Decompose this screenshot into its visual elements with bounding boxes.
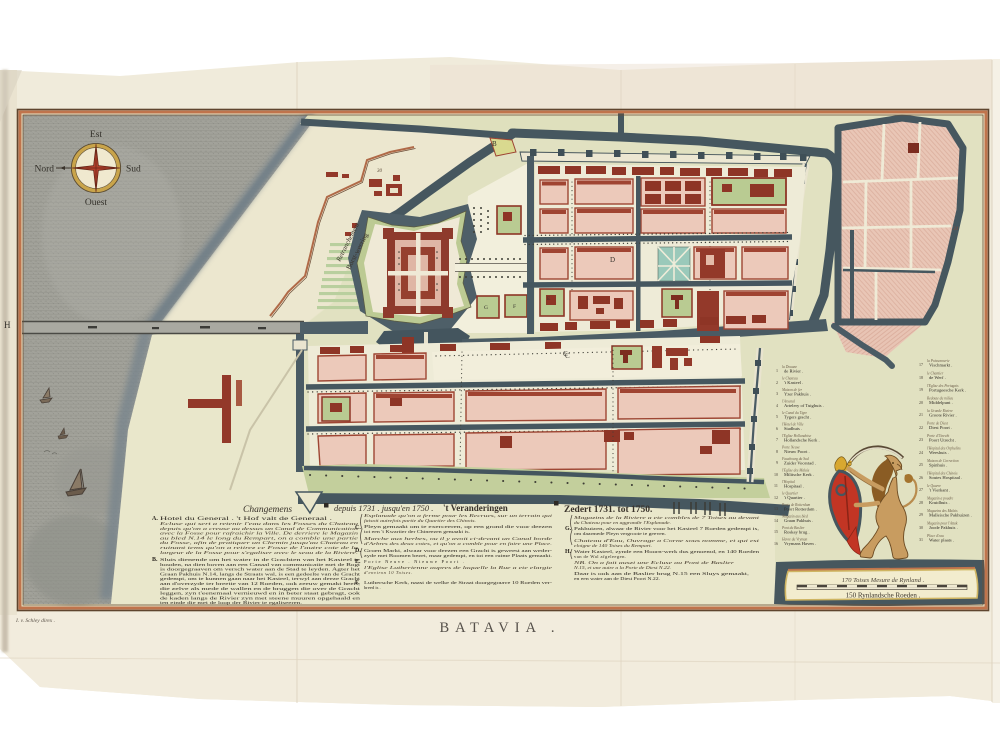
svg-text:Spinhuis .: Spinhuis . [929, 463, 947, 468]
svg-text:eloigne de 140 Toises du Rempa: eloigne de 140 Toises du Rempart. [574, 543, 652, 548]
svg-text:B.: B. [152, 557, 158, 563]
svg-text:H: H [4, 320, 11, 330]
svg-text:8: 8 [776, 449, 778, 454]
svg-text:21: 21 [919, 412, 923, 417]
svg-text:28: 28 [919, 500, 923, 505]
svg-text:Water plaats .: Water plaats . [929, 538, 954, 543]
svg-text:Joode Pakhuis .: Joode Pakhuis . [929, 525, 958, 530]
svg-text:10: 10 [774, 472, 778, 477]
svg-text:ten einde die met de loop der: ten einde die met de loop der Rivier te … [160, 600, 302, 605]
svg-text:Vischmarkt .: Vischmarkt . [929, 363, 952, 368]
svg-text:Hollandsche Kerk .: Hollandsche Kerk . [784, 438, 820, 443]
svg-text:'t Veranderingen: 't Veranderingen [443, 503, 508, 513]
svg-text:en een water aan de Diest Poor: en een water aan de Diest Poort N.22. [574, 576, 660, 581]
svg-text:26: 26 [919, 475, 923, 480]
svg-text:Porte Neuve . Nieuwe Poort .: Porte Neuve . Nieuwe Poort . [364, 559, 464, 564]
svg-text:Poort Utrecht .: Poort Utrecht . [929, 438, 956, 443]
svg-text:F: F [513, 304, 516, 310]
svg-text:27: 27 [919, 487, 923, 492]
svg-text:2: 2 [776, 380, 778, 385]
svg-text:7: 7 [776, 437, 778, 442]
svg-text:170 Toises Mesure de Rynland .: 170 Toises Mesure de Rynland . [842, 577, 925, 584]
svg-text:Groote Rivier .: Groote Rivier . [929, 413, 957, 418]
svg-text:Sud: Sud [126, 165, 141, 175]
svg-text:5: 5 [776, 414, 778, 419]
svg-text:d'environ 10 Toises.: d'environ 10 Toises. [364, 570, 412, 575]
svg-text:Stadhuis .: Stadhuis . [784, 426, 802, 431]
svg-text:24: 24 [919, 450, 923, 455]
svg-text:17: 17 [919, 362, 923, 367]
svg-text:Militsche Kerk .: Militsche Kerk . [784, 472, 814, 477]
svg-text:25: 25 [919, 462, 923, 467]
svg-text:Changemens: Changemens [243, 505, 292, 515]
svg-text:Diest Poort .: Diest Poort . [929, 425, 952, 430]
svg-text:B: B [492, 140, 497, 148]
svg-text:13: 13 [774, 506, 778, 511]
svg-text:I. v. Schley direx .: I. v. Schley direx . [15, 618, 55, 624]
svg-text:Zuider Voorstad .: Zuider Voorstad . [784, 461, 816, 466]
svg-text:150 Rynlandsche Roeden .: 150 Rynlandsche Roeden . [846, 592, 921, 600]
svg-text:Kruidhuis .: Kruidhuis . [929, 500, 950, 505]
svg-text:'t Vierkant .: 't Vierkant . [929, 488, 950, 493]
svg-text:breed is .: breed is . [364, 585, 381, 590]
svg-text:om daarmede Pleyn vergroote te: om daarmede Pleyn vergroote te geeven. [574, 531, 666, 536]
svg-text:Zedert 1731. tot 1750.: Zedert 1731. tot 1750. [564, 505, 652, 515]
svg-text:9: 9 [776, 460, 778, 465]
svg-text:11: 11 [774, 483, 778, 488]
svg-text:20: 20 [919, 400, 923, 405]
svg-text:Portugeesche Kerk .: Portugeesche Kerk . [929, 388, 966, 393]
svg-text:29: 29 [919, 512, 923, 517]
svg-text:BATAVIA .: BATAVIA . [439, 620, 560, 636]
svg-text:depuis 1731 . jusqu'en 1750 .: depuis 1731 . jusqu'en 1750 . [334, 503, 433, 513]
svg-text:4: 4 [776, 403, 778, 408]
svg-text:Poort Rotterdam .: Poort Rotterdam . [784, 507, 817, 512]
svg-text:Nord: Nord [34, 165, 54, 175]
svg-text:Vrymans Haven .: Vrymans Haven . [784, 541, 816, 546]
svg-text:31: 31 [952, 226, 959, 232]
svg-text:19: 19 [919, 387, 923, 392]
svg-text:'t Kasteel .: 't Kasteel . [784, 380, 803, 385]
svg-text:22: 22 [919, 425, 923, 430]
svg-text:Roskay brug .: Roskay brug . [784, 530, 810, 535]
svg-text:Yzer Pakhuis .: Yzer Pakhuis . [784, 392, 811, 397]
svg-text:tot een 't Kwartier der Chinee: tot een 't Kwartier der Chineezen gemaak… [364, 529, 470, 534]
svg-text:Middelpunt .: Middelpunt . [929, 400, 953, 405]
svg-text:30: 30 [919, 525, 923, 530]
svg-text:du Chateau pour en aggrandir l: du Chateau pour en aggrandir l'Esplanade… [574, 520, 671, 525]
svg-text:Hospitaal .: Hospitaal . [784, 484, 804, 489]
svg-text:30: 30 [377, 169, 383, 174]
svg-text:F.: F. [355, 580, 360, 586]
svg-text:6: 6 [776, 426, 778, 431]
svg-text:12: 12 [774, 495, 778, 500]
svg-text:'t Quartier .: 't Quartier . [784, 495, 805, 500]
svg-text:16: 16 [774, 541, 778, 546]
svg-text:de Rivier .: de Rivier . [784, 369, 803, 374]
svg-text:Est: Est [90, 130, 103, 140]
svg-text:3: 3 [776, 391, 778, 396]
svg-text:G: G [484, 305, 488, 311]
svg-text:Artelery of Tuighuis .: Artelery of Tuighuis . [784, 403, 824, 408]
svg-text:Malleische Pakhuizen .: Malleische Pakhuizen . [929, 513, 972, 518]
svg-text:18: 18 [919, 375, 923, 380]
svg-text:31: 31 [919, 537, 923, 542]
svg-text:Nieuw Poort .: Nieuw Poort . [784, 449, 810, 454]
svg-text:Ouest: Ouest [85, 198, 108, 208]
svg-text:Graan Pakhuis .: Graan Pakhuis . [784, 518, 813, 523]
svg-text:D.: D. [355, 548, 361, 554]
svg-text:Tygers gracht .: Tygers gracht . [784, 415, 811, 420]
svg-text:Weeshuis .: Weeshuis . [929, 450, 949, 455]
svg-text:23: 23 [919, 437, 923, 442]
svg-text:1: 1 [776, 368, 778, 373]
svg-text:15: 15 [774, 529, 778, 534]
svg-text:C.: C. [355, 525, 361, 531]
svg-text:de Werf .: de Werf . [929, 375, 946, 380]
svg-text:A.: A. [152, 516, 158, 522]
svg-text:C: C [563, 350, 568, 358]
svg-text:D: D [610, 256, 615, 264]
svg-text:largeur de la Fosse pour s'ega: largeur de la Fosse pour s'egaliser avec… [160, 550, 358, 555]
svg-text:E.: E. [355, 559, 361, 565]
svg-text:van de Wal afgeleegen.: van de Wal afgeleegen. [574, 554, 626, 559]
svg-text:faisoit autrefois partie du Qu: faisoit autrefois partie du Quartier des… [364, 518, 476, 523]
svg-text:14: 14 [774, 518, 778, 523]
svg-text:Soutes Hospitaal .: Soutes Hospitaal . [929, 475, 962, 480]
